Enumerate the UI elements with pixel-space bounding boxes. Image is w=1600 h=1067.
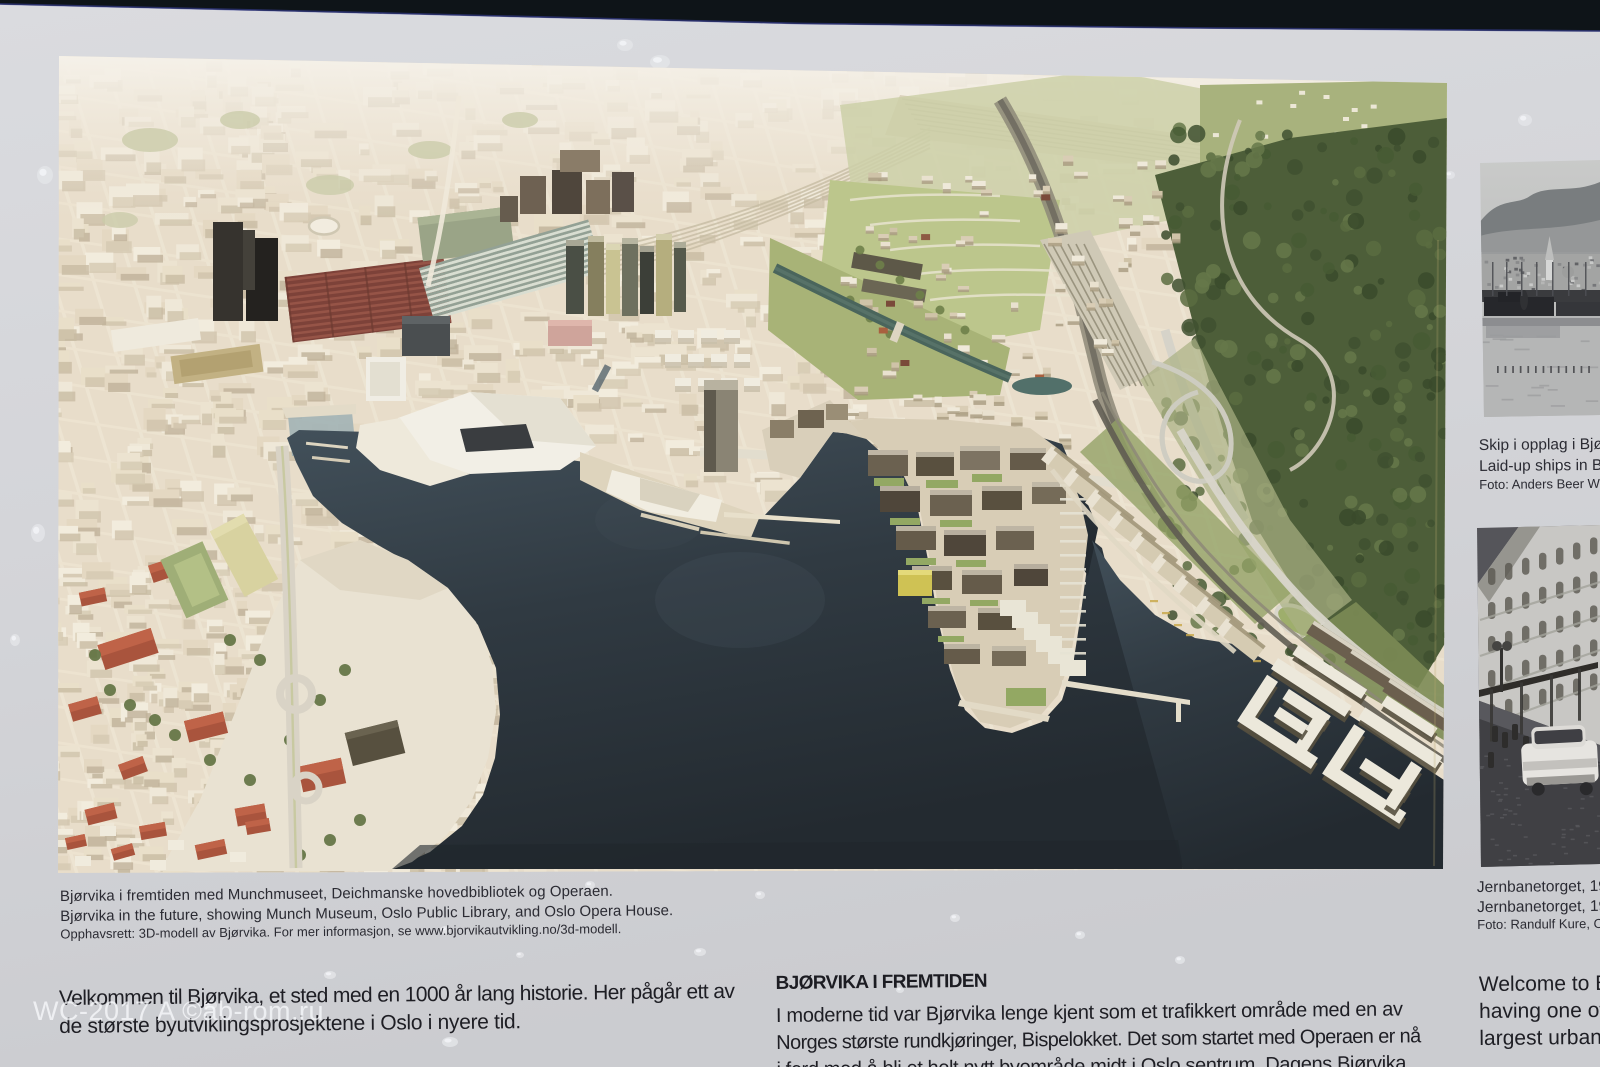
svg-text:Foto: Randulf Kure, Oslo Museu: Foto: Randulf Kure, Oslo Museum (1477, 915, 1600, 932)
svg-text:WC-2017 A ©ab-rom.ru: WC-2017 A ©ab-rom.ru (33, 996, 324, 1026)
svg-text:Jernbanetorget, 1960s.: Jernbanetorget, 1960s. (1477, 898, 1600, 916)
svg-text:largest urban development proj: largest urban development projects in Os… (1479, 1022, 1600, 1050)
svg-text:BJØRVIKA I FREMTIDEN: BJØRVIKA I FREMTIDEN (776, 971, 988, 994)
svg-text:Welcome to Bjørvika, a place w: Welcome to Bjørvika, a place with a 1000… (1479, 968, 1600, 996)
svg-text:Laid-up ships in Bjørvika: Laid-up ships in Bjørvika (1479, 457, 1600, 475)
svg-text:Skip i opplag i Bjørvika: Skip i opplag i Bjørvika (1479, 436, 1600, 454)
svg-text:Jernbanetorget, 1960-tallet.: Jernbanetorget, 1960-tallet. (1477, 877, 1600, 896)
svg-text:Foto: Anders Beer Wilse, Oslo: Foto: Anders Beer Wilse, Oslo (1479, 475, 1600, 492)
svg-text:having one of the largest urba: having one of the largest urban developm… (1479, 995, 1600, 1023)
